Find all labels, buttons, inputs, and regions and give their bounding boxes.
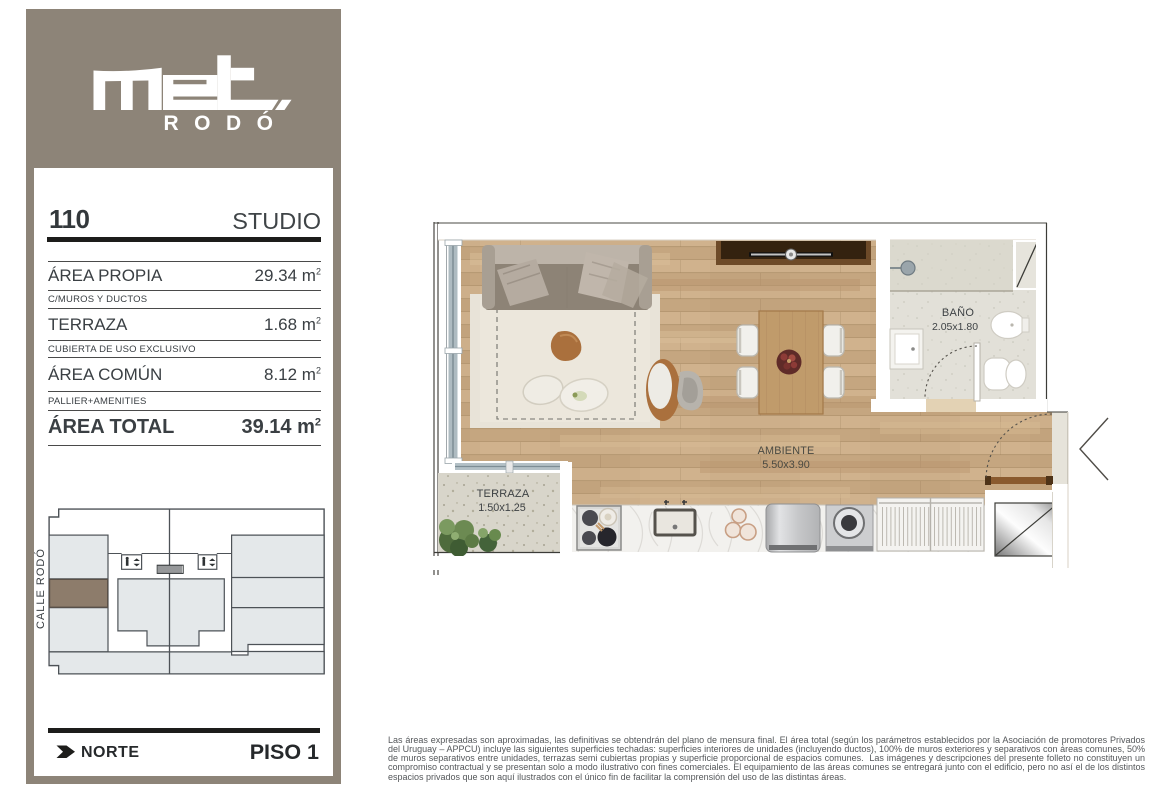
svg-text:BAÑO: BAÑO [942,306,975,319]
svg-text:AMBIENTE: AMBIENTE [758,445,815,457]
svg-text:1.50x1.25: 1.50x1.25 [478,502,525,514]
svg-text:2.05x1.80: 2.05x1.80 [932,321,978,333]
svg-text:TERRAZA: TERRAZA [477,488,530,500]
svg-text:5.50x3.90: 5.50x3.90 [762,459,809,471]
